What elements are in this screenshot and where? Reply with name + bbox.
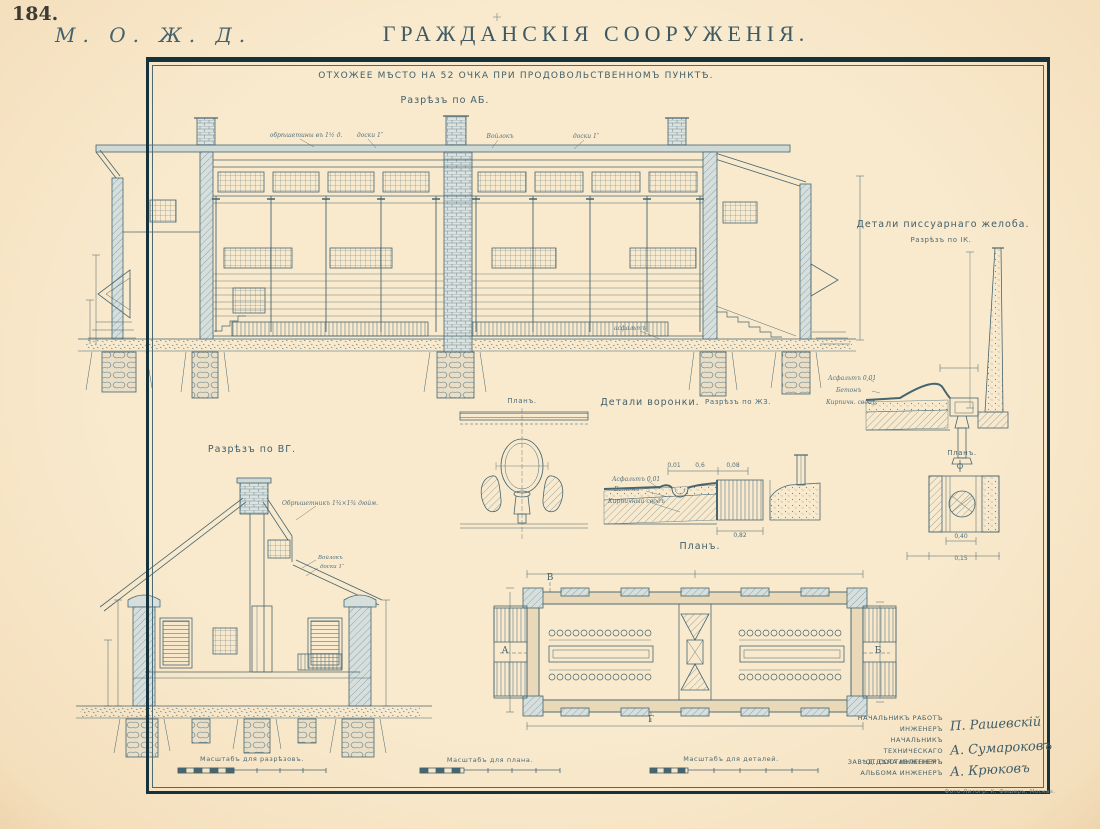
drain-dim-1: 0,40 (954, 534, 967, 541)
label-urinal-title: Детали писсуарнаго желоба. (856, 220, 1029, 230)
label-funnel-title: Детали воронки. (600, 398, 699, 408)
plan-letter-v: В (547, 574, 554, 584)
plan-letter-a: А (502, 647, 509, 657)
funnel-material-2: Бетонъ (614, 487, 639, 494)
signature-role-1: НАЧАЛЬНИКЪ РАБОТЪ ИНЖЕНЕРЪ (845, 713, 943, 735)
funnel-material-1: Асфальтъ 0,01 (612, 477, 660, 484)
label-drain-plan: Планъ. (947, 450, 976, 458)
urinal-material-3: Кирпичн. сводъ (826, 400, 876, 407)
funnel-dim-1: 0,01 (667, 463, 680, 470)
scale-label-details: Масштабъ для деталей. (683, 756, 778, 763)
plate-frame-inner-line (152, 65, 1044, 788)
vg-layer-note-1: Войлокъ (318, 555, 343, 561)
ab-roof-note-2: доски 1″ (357, 133, 383, 140)
scale-label-plan: Масштабъ для плана. (447, 757, 533, 764)
ab-roof-note-3: Войлокъ (487, 134, 514, 141)
label-plan: Планъ. (680, 542, 721, 552)
label-section-vg: Разрѣзъ по ВГ. (208, 445, 296, 455)
vg-layer-note-2: доски 1″ (320, 564, 344, 570)
railway-mark: М. О. Ж. Д. (55, 24, 252, 46)
signature-role-3-line1: ЗАВѢД. СОСТАВЛЕНІЕМЪ (848, 758, 943, 766)
funnel-dim-4: 0,82 (733, 533, 746, 540)
ab-ground-note: асфальтъ (614, 326, 646, 333)
plate-subtitle: ОТХОЖЕЕ МѢСТО НА 52 ОЧКА ПРИ ПРОДОВОЛЬСТ… (318, 72, 713, 82)
funnel-material-3: Кирпичный сводъ (608, 499, 665, 506)
signature-role-1-line2: ИНЖЕНЕРЪ (900, 725, 943, 733)
plan-letter-g: Г (648, 716, 654, 726)
registration-cross (493, 13, 501, 21)
urinal-material-2: Бетонъ (836, 388, 861, 395)
lithographer-imprint: Фото-Литогр. К. Фишеръ, Москва. (944, 789, 1055, 795)
signature-role-1-line1: НАЧАЛЬНИКЪ РАБОТЪ (858, 714, 943, 722)
label-section-ab: Разрѣзъ по АБ. (401, 96, 490, 106)
urinal-material-1: Асфальтъ 0,01 (828, 376, 876, 383)
drawing-sheet: 184. М. О. Ж. Д. ГРАЖДАНСКІЯ СООРУЖЕНІЯ.… (0, 0, 1100, 829)
funnel-dim-3: 0,08 (726, 463, 739, 470)
page-number: 184. (12, 4, 58, 25)
scale-label-sections: Масштабъ для разрѣзовъ. (200, 756, 304, 763)
ab-roof-note-1: обрѣшетины въ 1½ д. (270, 133, 343, 140)
vg-roof-note: Обрѣшетникъ 1¾×1¾ дюйм. (282, 501, 378, 508)
label-funnel-plan: Планъ. (507, 398, 536, 406)
plan-letter-b: Б (875, 647, 882, 657)
plate-title: ГРАЖДАНСКІЯ СООРУЖЕНІЯ. (383, 22, 810, 46)
ab-roof-note-4: доски 1″ (573, 134, 599, 141)
signature-role-3: ЗАВѢД. СОСТАВЛЕНІЕМЪ АЛЬБОМА ИНЖЕНЕРЪ (845, 757, 943, 779)
label-urinal-section: Разрѣзъ по ІК. (910, 237, 971, 245)
signature-role-2-line1: НАЧАЛЬНИКЪ ТЕХНИЧЕСКАГО (883, 736, 943, 755)
drain-dim-2: 0,15 (954, 556, 967, 563)
plate-frame (146, 57, 1050, 794)
funnel-dim-2: 0,6 (695, 463, 705, 470)
signature-role-3-line2: АЛЬБОМА ИНЖЕНЕРЪ (860, 769, 943, 777)
label-funnel-section: Разрѣзъ по ЖЗ. (705, 399, 771, 407)
